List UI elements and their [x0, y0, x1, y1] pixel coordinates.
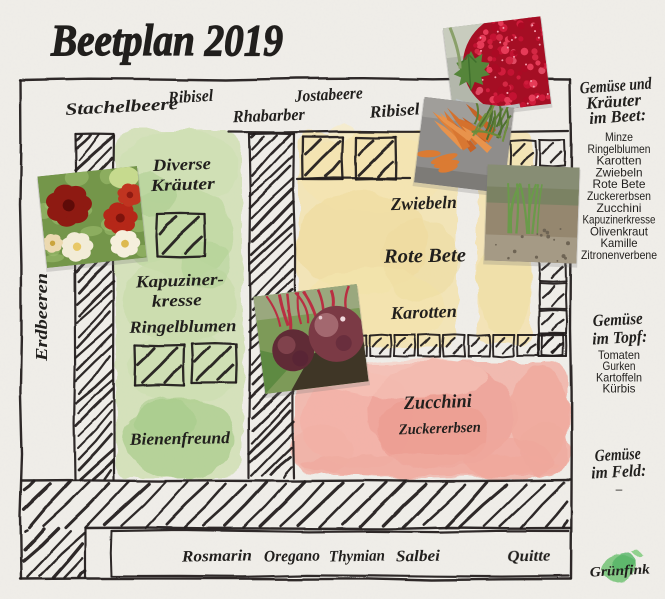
svg-text:Grünfink: Grünfink: [589, 562, 650, 580]
svg-text:im Feld:: im Feld:: [591, 461, 647, 483]
svg-text:Diverse: Diverse: [151, 154, 211, 175]
svg-text:Quitte: Quitte: [507, 548, 550, 566]
svg-text:Zucchini: Zucchini: [403, 391, 473, 414]
svg-text:Rhabarber: Rhabarber: [232, 105, 306, 127]
svg-text:Karotten: Karotten: [389, 301, 457, 323]
svg-text:Kräuter: Kräuter: [149, 174, 215, 195]
svg-text:Kürbis: Kürbis: [603, 382, 636, 396]
svg-text:im Beet:: im Beet:: [589, 105, 647, 128]
svg-text:Ribisel: Ribisel: [167, 86, 214, 107]
svg-text:Salbei: Salbei: [396, 548, 441, 566]
svg-text:kresse: kresse: [151, 290, 202, 311]
svg-text:im Topf:: im Topf:: [592, 327, 648, 349]
svg-text:Zitronenverbene: Zitronenverbene: [581, 248, 657, 262]
svg-text:Rote Bete: Rote Bete: [383, 244, 467, 267]
svg-text:Jostabeere: Jostabeere: [293, 83, 363, 106]
svg-text:Erdbeeren: Erdbeeren: [32, 273, 51, 362]
svg-text:Rosmarin: Rosmarin: [181, 547, 252, 565]
svg-text:Oregano: Oregano: [264, 548, 320, 566]
svg-text:Beetplan 2019: Beetplan 2019: [50, 16, 283, 65]
svg-text:Bienenfreund: Bienenfreund: [129, 428, 231, 449]
svg-text:Ringelblumen: Ringelblumen: [128, 316, 236, 337]
svg-text:–: –: [616, 482, 623, 496]
svg-text:Zwiebeln: Zwiebeln: [389, 192, 457, 214]
svg-text:Ribisel: Ribisel: [368, 99, 421, 122]
svg-text:Kapuziner-: Kapuziner-: [134, 269, 224, 291]
svg-text:Zuckererbsen: Zuckererbsen: [398, 420, 481, 439]
svg-text:Thymian: Thymian: [329, 548, 385, 566]
